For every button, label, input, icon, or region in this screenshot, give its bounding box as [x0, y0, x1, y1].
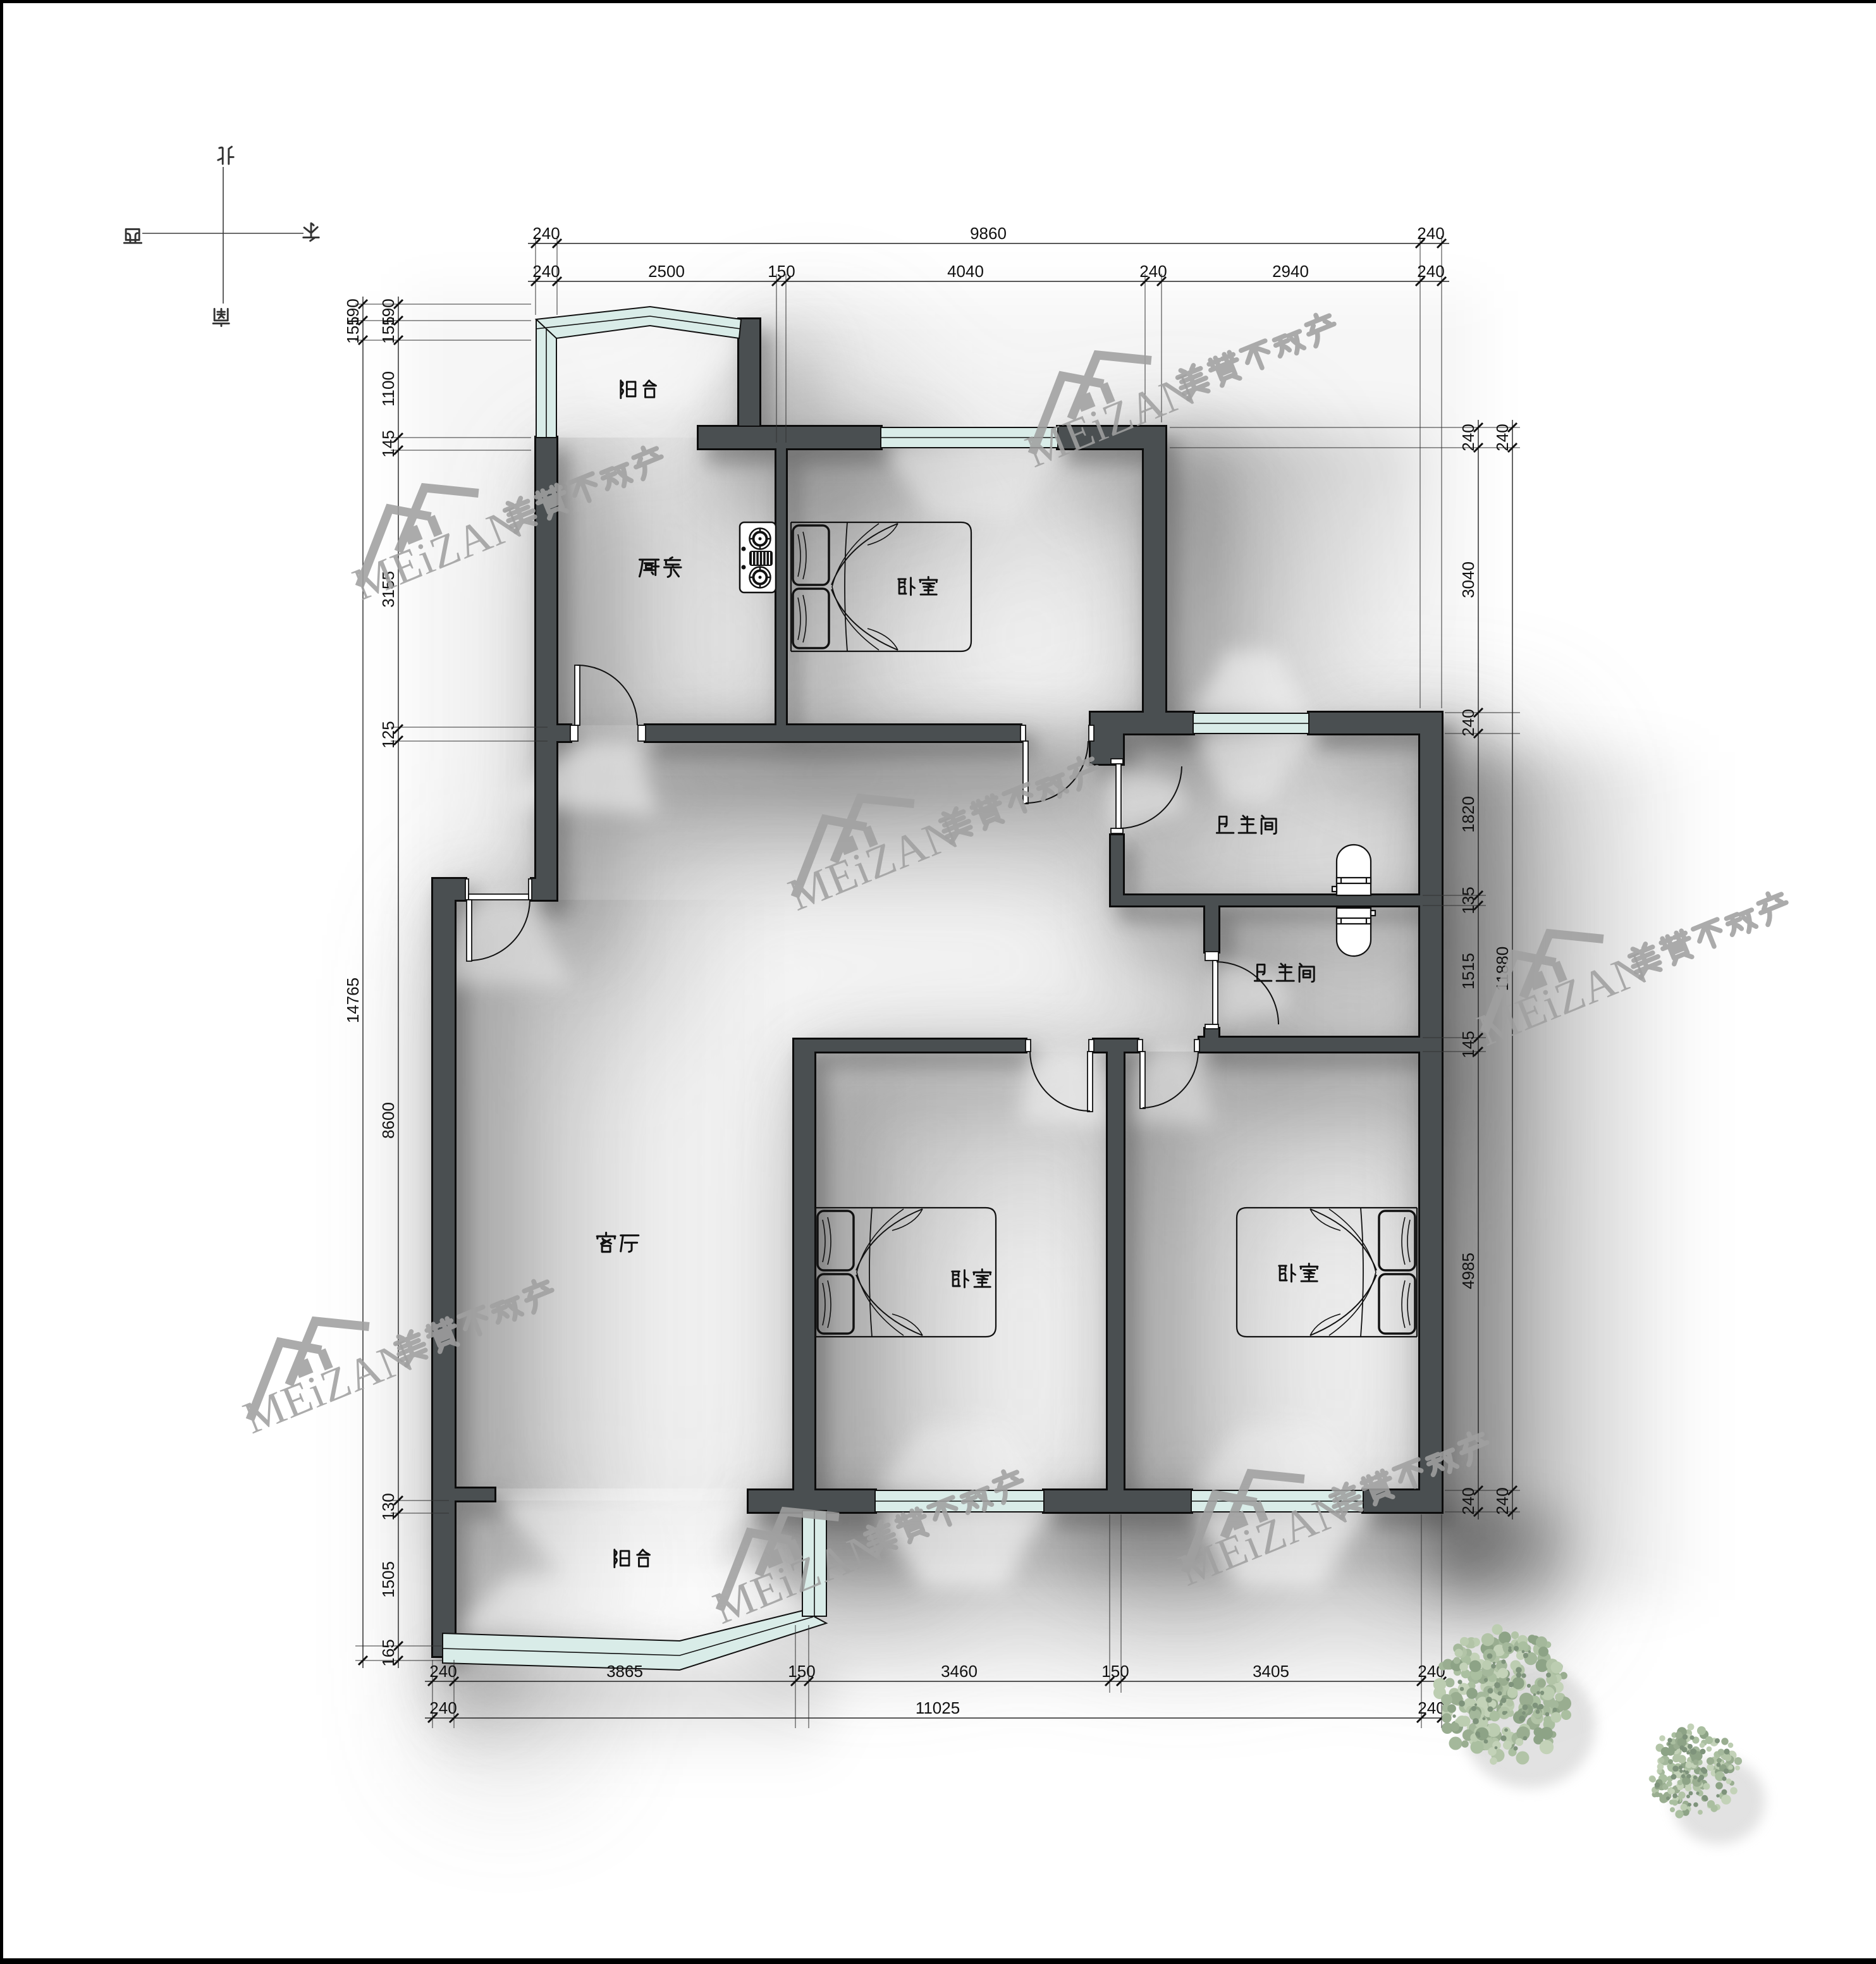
svg-text:3865: 3865 [606, 1662, 643, 1681]
svg-text:3460: 3460 [941, 1662, 978, 1681]
svg-text:240: 240 [1459, 424, 1478, 451]
svg-text:130: 130 [379, 1493, 398, 1520]
svg-text:1100: 1100 [379, 371, 398, 407]
svg-text:240: 240 [1493, 424, 1512, 451]
svg-text:8600: 8600 [379, 1102, 398, 1139]
svg-text:3405: 3405 [1253, 1662, 1289, 1681]
svg-text:1820: 1820 [1459, 796, 1478, 833]
svg-text:4040: 4040 [947, 262, 984, 281]
svg-text:240: 240 [532, 262, 560, 281]
svg-text:150: 150 [788, 1662, 815, 1681]
svg-text:2940: 2940 [1272, 262, 1309, 281]
svg-text:1515: 1515 [1459, 953, 1478, 990]
svg-text:2500: 2500 [648, 262, 685, 281]
svg-text:240: 240 [1459, 709, 1478, 736]
svg-text:240: 240 [532, 224, 560, 243]
svg-text:150: 150 [1101, 1662, 1129, 1681]
svg-text:240: 240 [1459, 1487, 1478, 1514]
svg-text:240: 240 [1417, 262, 1444, 281]
svg-text:145: 145 [379, 430, 398, 457]
svg-text:9860: 9860 [970, 224, 1007, 243]
svg-text:155: 155 [343, 316, 362, 343]
svg-text:135: 135 [1459, 887, 1478, 914]
svg-text:240: 240 [1418, 1698, 1445, 1717]
svg-text:4985: 4985 [1459, 1253, 1478, 1289]
svg-text:240: 240 [1139, 262, 1167, 281]
svg-text:240: 240 [429, 1698, 457, 1717]
svg-text:11025: 11025 [916, 1698, 960, 1717]
svg-text:3040: 3040 [1459, 562, 1478, 598]
svg-text:240: 240 [1417, 224, 1444, 243]
svg-text:165: 165 [379, 1639, 398, 1666]
svg-text:155: 155 [379, 316, 398, 343]
svg-text:14765: 14765 [343, 978, 362, 1023]
svg-text:240: 240 [1493, 1487, 1512, 1514]
svg-text:150: 150 [768, 262, 795, 281]
svg-text:125: 125 [379, 721, 398, 748]
svg-text:145: 145 [1459, 1031, 1478, 1058]
svg-text:1505: 1505 [379, 1561, 398, 1598]
svg-text:240: 240 [429, 1662, 457, 1681]
